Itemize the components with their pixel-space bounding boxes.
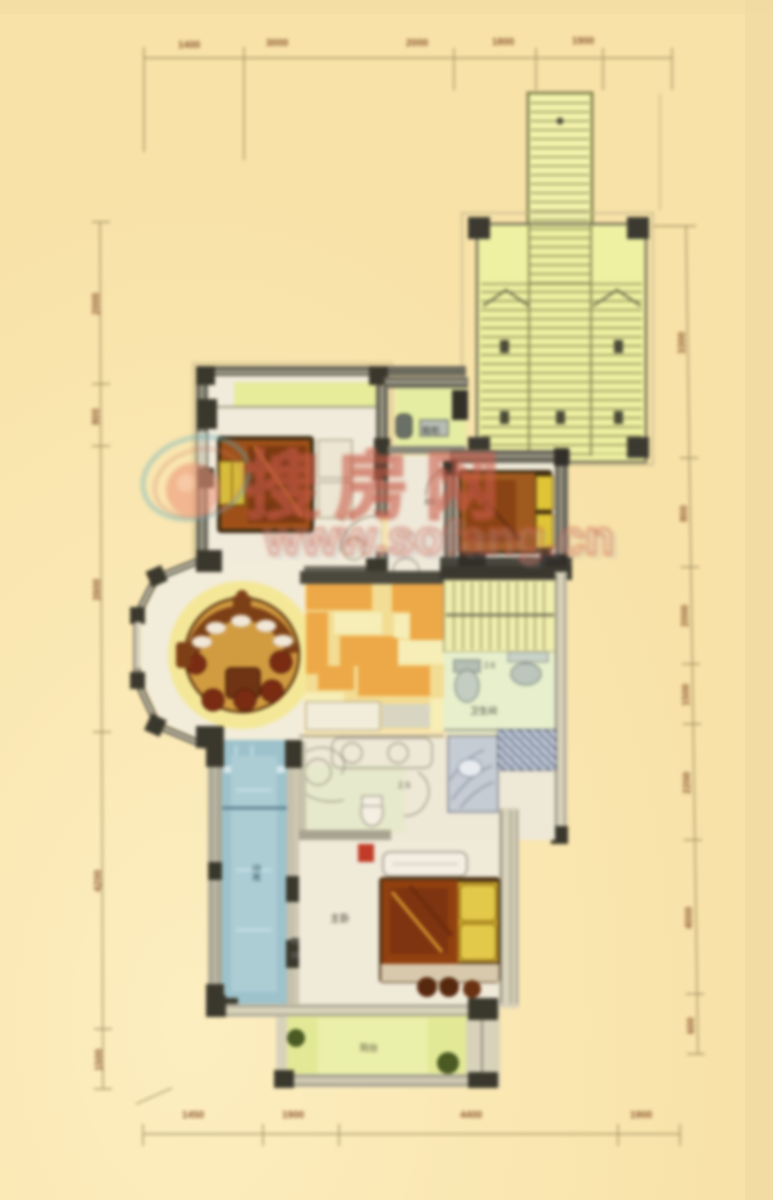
svg-text:1500: 1500 [94, 1048, 105, 1071]
svg-text:2.6: 2.6 [484, 661, 496, 670]
svg-text:1900: 1900 [282, 1110, 305, 1121]
svg-text:3900: 3900 [92, 578, 103, 601]
svg-text:2.6: 2.6 [398, 780, 411, 790]
svg-text:1900: 1900 [572, 36, 595, 47]
svg-text:2000: 2000 [680, 604, 691, 627]
svg-text:1800: 1800 [492, 37, 515, 48]
svg-text:4200: 4200 [93, 869, 104, 892]
svg-text:800: 800 [679, 505, 690, 522]
svg-text:淋浴: 淋浴 [251, 864, 262, 882]
svg-text:1450: 1450 [182, 1110, 205, 1121]
svg-text:阳台: 阳台 [360, 1042, 378, 1053]
svg-text:1500: 1500 [681, 683, 692, 706]
svg-text:4400: 4400 [460, 1110, 483, 1121]
svg-text:1900: 1900 [630, 1110, 653, 1121]
svg-text:主卧: 主卧 [330, 912, 350, 925]
svg-text:4000: 4000 [684, 906, 695, 929]
svg-text:600: 600 [686, 1017, 697, 1034]
svg-text:800: 800 [91, 408, 102, 425]
svg-text:www.sofang.cn: www.sofang.cn [263, 512, 614, 565]
svg-text:2200: 2200 [682, 771, 693, 794]
svg-text:1400: 1400 [178, 40, 201, 51]
svg-text:3300: 3300 [677, 331, 688, 354]
svg-text:3000: 3000 [266, 38, 289, 49]
svg-text:鞋柜: 鞋柜 [422, 425, 440, 436]
svg-text:2000: 2000 [406, 38, 429, 49]
svg-text:2000: 2000 [91, 292, 102, 315]
svg-text:卫生间: 卫生间 [470, 705, 497, 716]
